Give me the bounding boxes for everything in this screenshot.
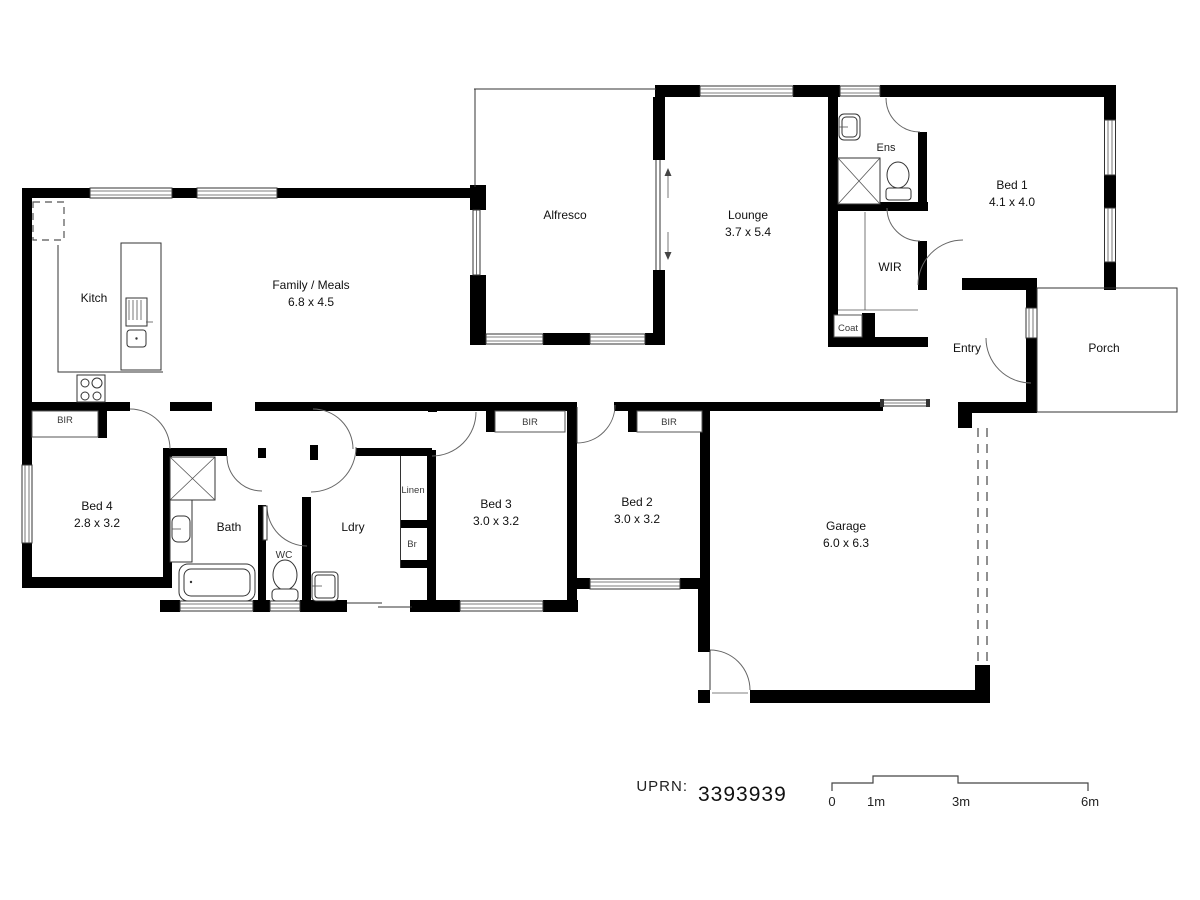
shower bbox=[170, 457, 215, 500]
uprn-label: UPRN: bbox=[636, 778, 688, 795]
ens-shower bbox=[838, 158, 880, 204]
dims-bed3: 3.0 x 3.2 bbox=[473, 514, 519, 528]
label-ldry: Ldry bbox=[341, 520, 364, 534]
scale-bar: 0 1m 3m 6m bbox=[828, 776, 1099, 809]
footer: UPRN: 3393939 0 1m 3m 6m bbox=[636, 776, 1099, 809]
scale-tick-0: 0 bbox=[828, 794, 835, 809]
window bbox=[700, 86, 793, 96]
bed4-door-arc bbox=[130, 409, 170, 449]
entry-screen bbox=[880, 399, 930, 407]
window bbox=[180, 601, 253, 611]
outdoor-outlines bbox=[474, 89, 1177, 412]
window bbox=[1105, 208, 1116, 262]
label-bed4: Bed 4 bbox=[81, 499, 113, 513]
wc-door-leaf bbox=[263, 506, 267, 540]
window bbox=[473, 210, 480, 275]
dims-bed1: 4.1 x 4.0 bbox=[989, 195, 1035, 209]
back-sliding-door bbox=[347, 603, 412, 607]
label-ens: Ens bbox=[877, 142, 896, 154]
window bbox=[270, 601, 300, 611]
wir-door-arc bbox=[887, 208, 920, 241]
bath-door-arc bbox=[227, 456, 262, 491]
label-bir-bed4: BIR bbox=[57, 415, 73, 426]
label-bir-bed2: BIR bbox=[661, 417, 677, 428]
label-br: Br bbox=[407, 539, 417, 550]
sliding-door bbox=[656, 160, 672, 270]
arrow-up-icon bbox=[665, 168, 672, 176]
ens-door-arc bbox=[886, 98, 920, 132]
scale-tick-1m: 1m bbox=[867, 794, 885, 809]
label-kitch: Kitch bbox=[81, 291, 108, 305]
toilet-wc bbox=[272, 560, 298, 601]
bathtub bbox=[179, 564, 255, 601]
bed3-door-arc bbox=[432, 412, 476, 456]
scale-tick-6m: 6m bbox=[1081, 794, 1099, 809]
window bbox=[22, 465, 32, 543]
label-wir: WIR bbox=[878, 260, 902, 274]
label-bed3: Bed 3 bbox=[480, 497, 512, 511]
arrow-down-icon bbox=[665, 252, 672, 260]
hall-door-arc bbox=[313, 409, 353, 449]
floor-plan: Kitch Family / Meals 6.8 x 4.5 Alfresco … bbox=[0, 0, 1200, 900]
bed2-door-arc bbox=[577, 405, 615, 443]
window bbox=[1105, 120, 1116, 175]
label-coat: Coat bbox=[838, 323, 858, 334]
label-bed1: Bed 1 bbox=[996, 178, 1028, 192]
label-porch: Porch bbox=[1088, 341, 1119, 355]
dims-lounge: 3.7 x 5.4 bbox=[725, 225, 771, 239]
window bbox=[460, 601, 543, 611]
front-door-arc bbox=[986, 338, 1031, 383]
vanity bbox=[170, 500, 192, 562]
label-lounge: Lounge bbox=[728, 208, 768, 222]
ens-sink bbox=[839, 114, 860, 140]
garage-door-arc bbox=[710, 650, 750, 690]
window bbox=[486, 334, 543, 344]
wc-door-arc bbox=[267, 506, 307, 546]
uprn-value: 3393939 bbox=[698, 783, 787, 806]
front-door-frame bbox=[1026, 308, 1037, 338]
labels: Kitch Family / Meals 6.8 x 4.5 Alfresco … bbox=[57, 142, 1120, 561]
window bbox=[90, 188, 172, 198]
label-alfresco: Alfresco bbox=[543, 208, 587, 222]
laundry-sink bbox=[312, 572, 338, 601]
dims-garage: 6.0 x 6.3 bbox=[823, 536, 869, 550]
window bbox=[840, 86, 880, 96]
window bbox=[197, 188, 277, 198]
label-bed2: Bed 2 bbox=[621, 495, 653, 509]
scale-tick-3m: 3m bbox=[952, 794, 970, 809]
dims-bed2: 3.0 x 3.2 bbox=[614, 512, 660, 526]
label-entry: Entry bbox=[953, 341, 981, 355]
dims-bed4: 2.8 x 3.2 bbox=[74, 516, 120, 530]
window bbox=[590, 334, 645, 344]
label-bath: Bath bbox=[217, 520, 242, 534]
garage-opening bbox=[978, 428, 987, 665]
dims-family: 6.8 x 4.5 bbox=[288, 295, 334, 309]
stove bbox=[77, 375, 105, 402]
window bbox=[590, 579, 680, 589]
ens-toilet bbox=[886, 162, 911, 200]
label-wc: WC bbox=[276, 550, 293, 561]
fridge-space bbox=[33, 202, 64, 240]
label-linen: Linen bbox=[401, 485, 424, 496]
label-garage: Garage bbox=[826, 519, 866, 533]
label-family: Family / Meals bbox=[272, 278, 349, 292]
label-bir-bed3: BIR bbox=[522, 417, 538, 428]
